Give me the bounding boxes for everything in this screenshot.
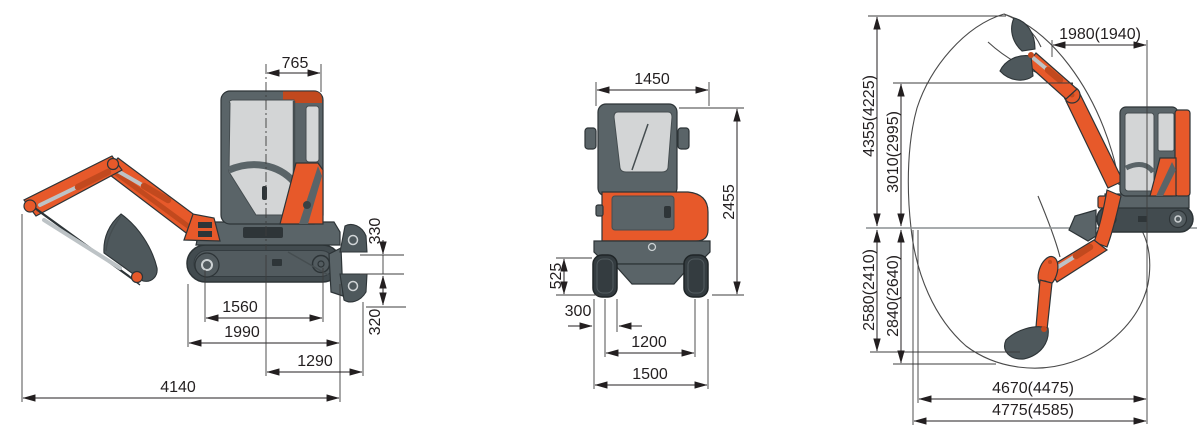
dim-track-gauge-label: 1200	[631, 334, 667, 351]
axle-frame	[614, 264, 692, 284]
dim-wheelbase-label: 1560	[222, 299, 258, 316]
side-tracks	[187, 245, 341, 282]
boom-apex-pin	[108, 159, 119, 170]
side-boom-arm	[24, 156, 208, 285]
dim-max-cutting-height-label: 4355(4225)	[861, 75, 878, 157]
idler-wheel	[195, 253, 219, 277]
blade-raised	[340, 224, 367, 252]
windshield	[614, 112, 672, 172]
dim-track-length: 1990	[188, 284, 340, 402]
dim-max-vertical-digging-depth-label: 2840(2640)	[885, 255, 902, 337]
dim-shoe-width-label: 300	[565, 303, 592, 320]
dim-upper-rear-length-label: 765	[282, 55, 309, 72]
dim-top-swing-radius: 1980(1940)	[1052, 26, 1146, 57]
dim-cab-width: 1450	[596, 71, 709, 106]
wr-engine-column	[1175, 110, 1190, 196]
right-mirror	[678, 128, 689, 149]
dim-top-swing-radius-label: 1980(1940)	[1059, 26, 1141, 43]
dim-blade-drop: 320	[367, 276, 384, 335]
side-bucket	[104, 214, 157, 281]
dim-track-height-label: 525	[548, 263, 565, 290]
dim-digging-reach-at-ground: 4670(4475)	[918, 230, 1146, 403]
dim-track-length-label: 1990	[224, 324, 260, 341]
dim-max-digging-depth-label: 2580(2410)	[861, 249, 878, 331]
rear-window	[306, 106, 319, 162]
arm-end-pin	[24, 200, 36, 212]
dim-max-cutting-height: 4355(4225)	[861, 16, 1006, 226]
front-machine	[585, 104, 710, 297]
left-mirror	[585, 128, 596, 149]
side-body	[184, 91, 340, 245]
wr-cab-window	[1125, 113, 1154, 191]
wr-bucket-lowered	[1005, 327, 1049, 359]
dim-overall-height-label: 2455	[721, 184, 738, 220]
wr-cab	[1120, 107, 1190, 196]
dim-max-dumping-height-label: 3010(2995)	[885, 111, 902, 193]
wr-bucket-curl	[1000, 56, 1033, 81]
dim-blade-raise-label: 330	[367, 218, 384, 245]
bucket-pin	[132, 272, 143, 283]
diagram-canvas: 765 330 320 1560	[0, 0, 1200, 443]
working-range-view: 1980(1940) 4355(4225) 3010(2995) 2580(24…	[861, 14, 1197, 425]
front-view: 1450 2455 525 300	[548, 71, 744, 389]
wr-machine	[1000, 18, 1193, 359]
dim-center-to-blade-label: 1290	[297, 353, 333, 370]
dim-overall-length-label: 4140	[160, 379, 196, 396]
fuel-cap	[303, 201, 311, 209]
side-view: 765 330 320 1560	[22, 55, 406, 402]
dim-max-digging-reach-label: 4775(4585)	[992, 402, 1074, 419]
dim-track-gauge: 1200	[605, 299, 695, 357]
dim-track-height: 525	[548, 258, 600, 295]
wr-bucket-dump	[1012, 18, 1035, 51]
dim-max-vertical-digging-depth: 2840(2640)	[885, 230, 996, 364]
blade-lowered	[340, 274, 367, 302]
excavator-dimension-diagram: 765 330 320 1560	[0, 0, 1200, 443]
panel-latch	[664, 206, 671, 218]
dim-overall-width-label: 1500	[632, 366, 668, 383]
wr-blade	[1069, 210, 1096, 241]
wr-arm-lowered	[1005, 190, 1121, 359]
dim-digging-reach-at-ground-label: 4670(4475)	[992, 380, 1074, 397]
wr-arm-raised	[1000, 18, 1123, 188]
dim-max-dumping-height: 3010(2995)	[885, 83, 1073, 226]
dim-cab-width-label: 1450	[634, 71, 670, 88]
dim-blade-drop-label: 320	[367, 309, 384, 336]
